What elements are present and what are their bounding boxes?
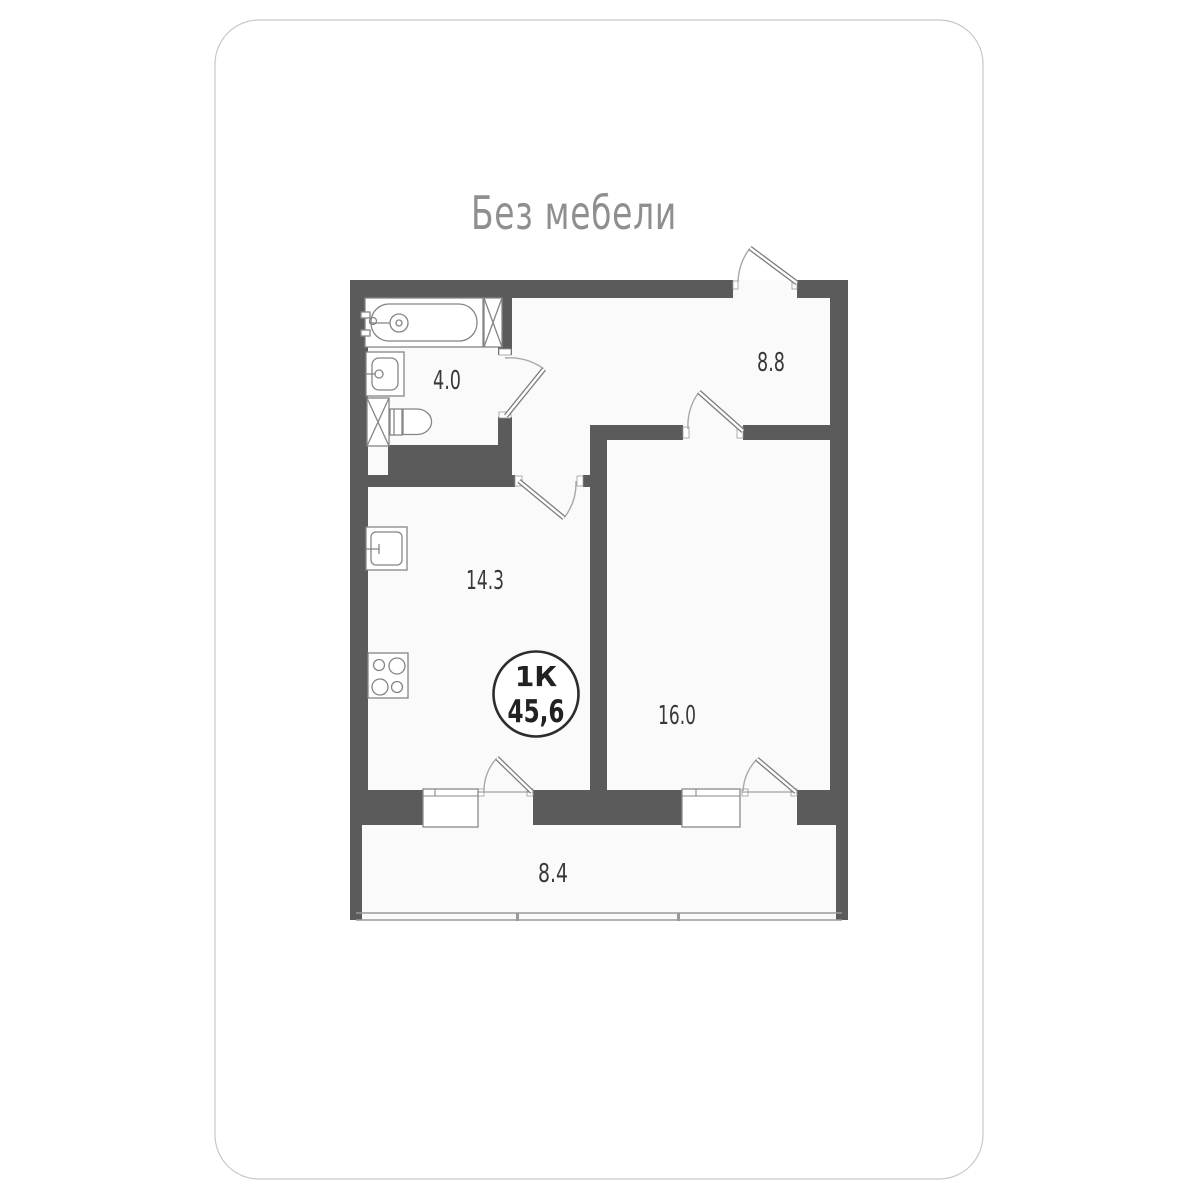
room-area-kitchen: 14.3 bbox=[466, 566, 504, 596]
jamb-mark bbox=[733, 281, 738, 289]
bathtub-icon bbox=[361, 298, 483, 347]
wall-segment bbox=[350, 280, 368, 825]
jamb-mark bbox=[577, 476, 583, 486]
wall-segment bbox=[830, 280, 848, 825]
kitchen-window-icon bbox=[423, 789, 478, 827]
toilet-icon bbox=[390, 409, 432, 435]
wall-segment bbox=[797, 790, 848, 825]
balcony-floor bbox=[350, 825, 848, 920]
badge-rooms-type: 1К bbox=[515, 660, 557, 693]
jamb-mark bbox=[499, 349, 511, 355]
vent-shaft-icon bbox=[484, 298, 502, 347]
wall-segment bbox=[388, 445, 512, 475]
living-room-window-icon bbox=[682, 789, 740, 827]
balcony-wall bbox=[350, 825, 362, 920]
apartment-badge: 1К 45,6 bbox=[494, 652, 579, 737]
wall-segment bbox=[363, 475, 515, 487]
wall-segment bbox=[350, 790, 423, 825]
kitchen-sink-icon bbox=[366, 527, 407, 570]
plan-title: Без мебели bbox=[471, 186, 677, 240]
page: Без мебели bbox=[0, 0, 1200, 1200]
room-area-balcony: 8.4 bbox=[538, 859, 568, 889]
floor-plan-image: Без мебели bbox=[0, 0, 1200, 1200]
room-area-hallway: 8.8 bbox=[757, 348, 785, 378]
wall-segment bbox=[590, 425, 607, 790]
badge-total-area: 45,6 bbox=[508, 694, 565, 730]
stove-icon bbox=[368, 653, 408, 698]
wall-segment bbox=[743, 425, 830, 440]
vent-shaft-icon bbox=[367, 398, 389, 446]
wall-segment bbox=[607, 425, 683, 440]
glazing-mullion bbox=[516, 913, 519, 921]
balcony-wall bbox=[836, 825, 848, 920]
bathroom-sink-icon bbox=[366, 352, 404, 396]
wall-segment bbox=[350, 280, 733, 298]
wall-segment bbox=[533, 790, 682, 825]
glazing-mullion bbox=[677, 913, 680, 921]
room-area-bathroom: 4.0 bbox=[433, 366, 461, 396]
room-area-living-room: 16.0 bbox=[658, 701, 696, 731]
